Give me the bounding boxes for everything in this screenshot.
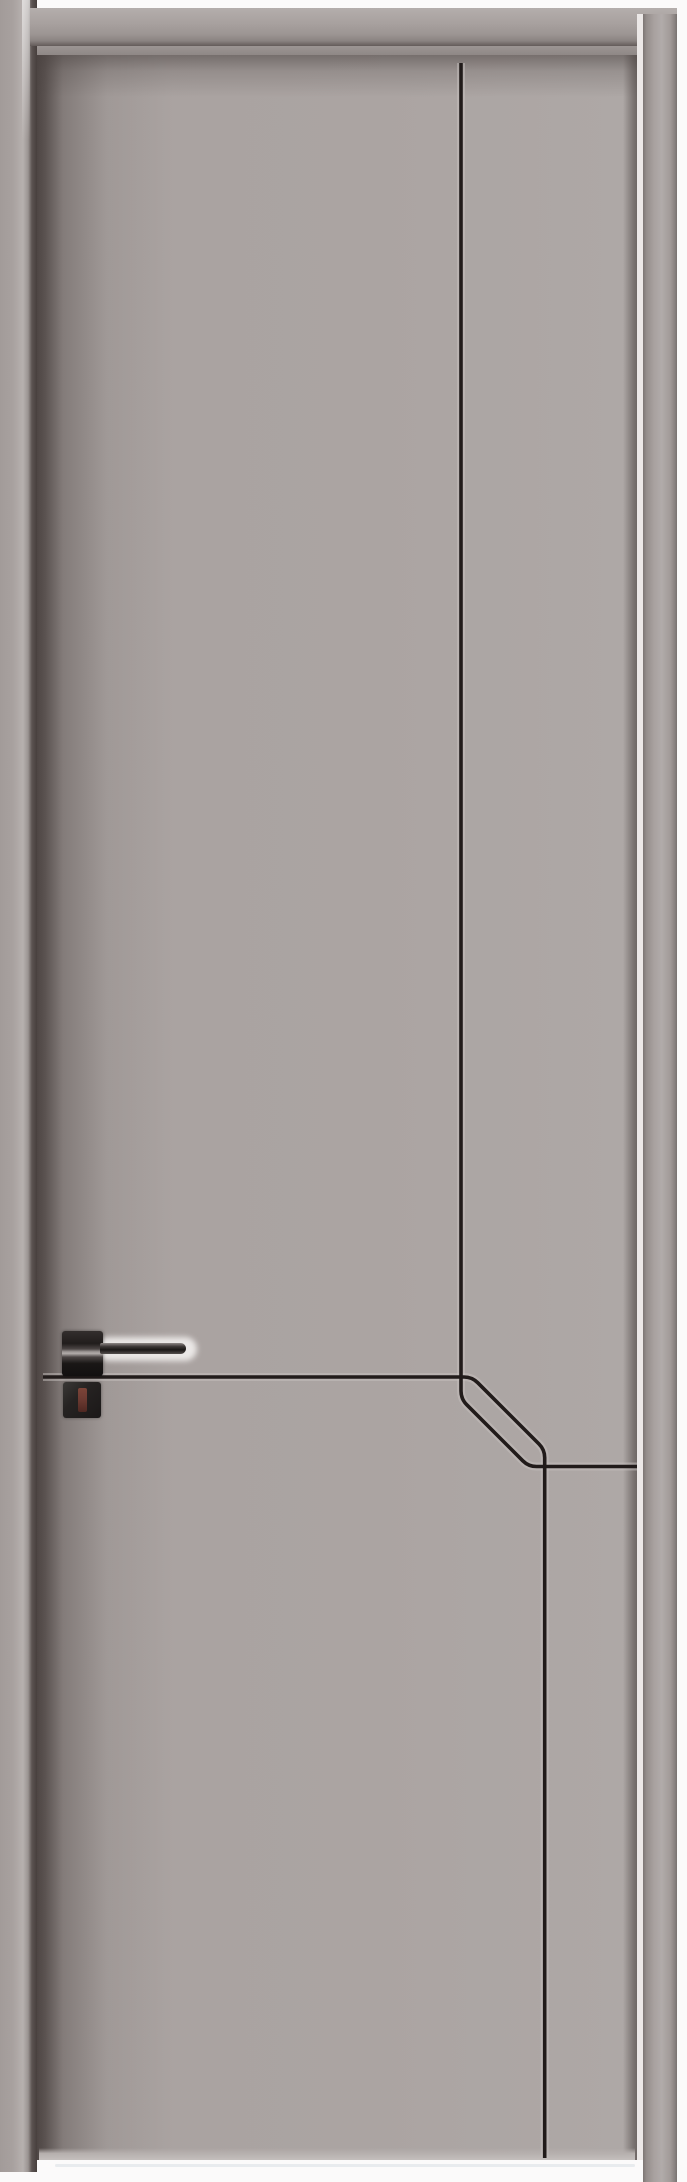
handle-rosette [62, 1331, 103, 1376]
door-frame-left-jamb [0, 0, 37, 2172]
floor-reflection-line [55, 2164, 635, 2167]
lever-handle [100, 1343, 186, 1354]
door-frame-head-inner-edge [37, 46, 637, 55]
door-frame-right-jamb [643, 14, 677, 2182]
door-frame-head [30, 8, 677, 46]
door-bottom-edge [39, 2148, 635, 2160]
door-lock [63, 1382, 101, 1418]
lock-thumbturn [78, 1388, 87, 1412]
door-panel [37, 55, 637, 2160]
door-product-photo [0, 0, 687, 2182]
